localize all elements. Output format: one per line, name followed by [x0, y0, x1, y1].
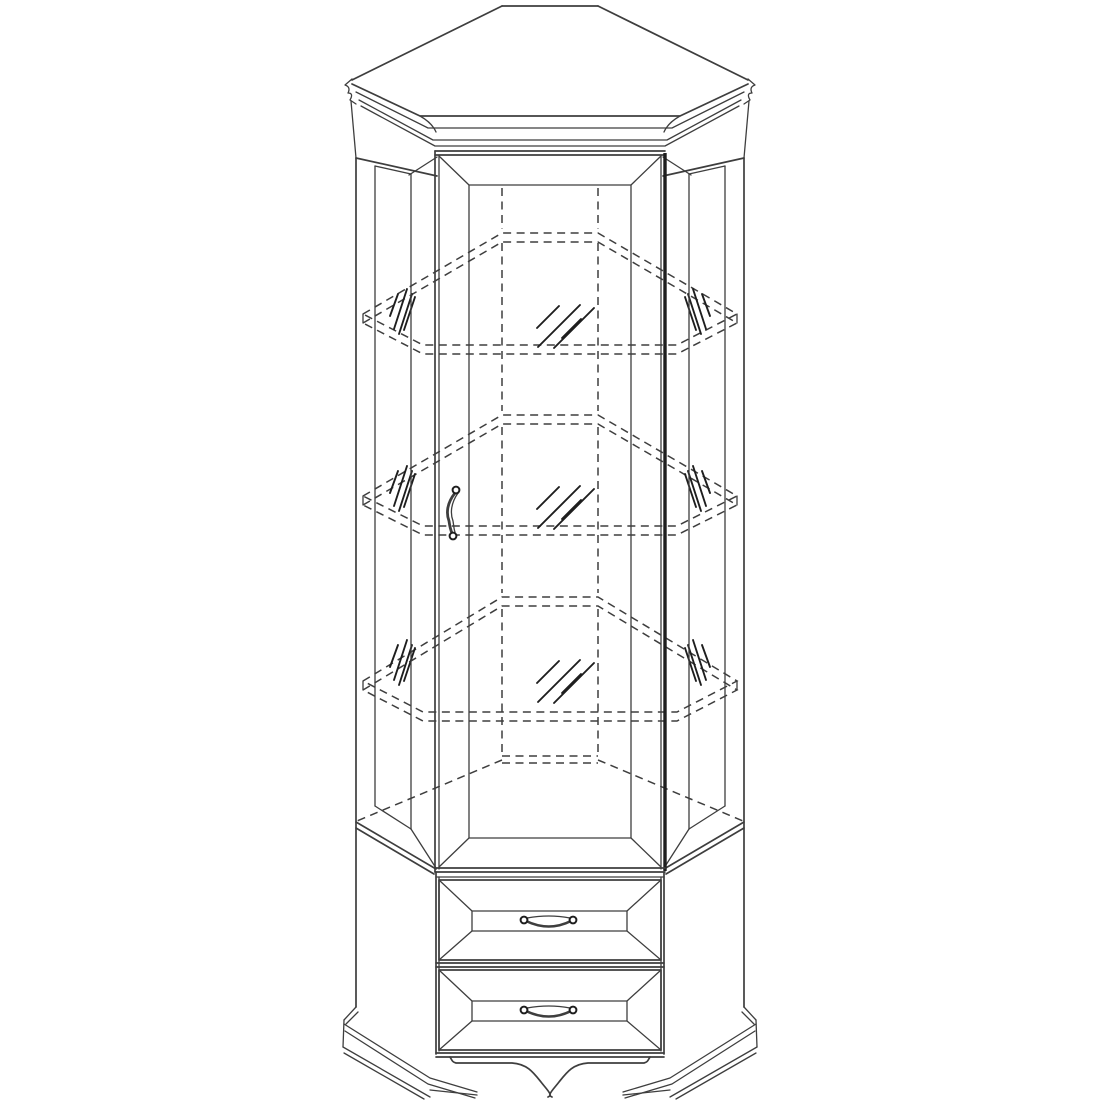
door-bottom-bevels: [439, 838, 661, 867]
drawer-panel: [472, 911, 627, 931]
right-top-edge: [663, 158, 744, 176]
foot-bottom-right: [623, 1090, 670, 1095]
drawer-lower: [439, 970, 661, 1050]
right-angled-side-panel: [663, 157, 744, 1007]
crown-ogee-ends: [420, 116, 680, 132]
crown-tip-right: [744, 79, 755, 104]
left-display-bottom-edge: [356, 822, 436, 874]
crown-tip-left: [345, 79, 356, 104]
drawer-panel: [472, 1001, 627, 1021]
drawer-divider-rail: [436, 963, 664, 967]
crown-tip-returns: [351, 101, 749, 158]
door-top-bevels: [439, 156, 661, 185]
door-top-edge: [435, 151, 665, 155]
glass-shelf-bottom: [363, 597, 737, 721]
cabinet-interior-hidden-lines: [357, 188, 743, 821]
door-pull-handle: [447, 487, 459, 540]
right-panel-ends: [689, 166, 725, 829]
shelf-edge-caps: [363, 496, 737, 505]
handle-top-knob: [453, 487, 460, 494]
left-panel-bevel-edges: [375, 166, 411, 829]
furniture-technical-drawing: [0, 0, 1100, 1100]
glass-hatch-center-middle: [537, 486, 594, 529]
right-panel-bevel-edges: [689, 166, 725, 829]
handle-bottom-knob: [450, 533, 457, 540]
shelf-edge-caps: [363, 681, 737, 690]
left-angled-side-panel: [356, 157, 437, 1007]
drawer-pull-handle: [521, 916, 577, 927]
left-panel-corner-bevels: [409, 157, 437, 868]
glass-hatch-marks: [390, 289, 710, 703]
interior-floor: [357, 756, 743, 821]
apron-arch-right: [550, 1057, 650, 1097]
drawer-pull-handle: [521, 1006, 577, 1017]
apron-arch-left: [450, 1057, 550, 1097]
door-glass-panel-frame: [469, 185, 631, 838]
interior-back-corner-edges: [502, 188, 598, 752]
crown-molding-hood: [345, 6, 755, 158]
drawer-upper: [439, 880, 661, 960]
glass-hatch-center-top: [537, 305, 594, 348]
drawer-section: [436, 872, 664, 1054]
foot-bottom-left: [430, 1090, 477, 1095]
drawer-stack-inner-edges: [439, 877, 661, 1051]
right-panel-corner-bevels: [663, 157, 691, 868]
left-panel-ends: [375, 166, 411, 829]
base-top-rail: [436, 1053, 664, 1057]
glass-display-door: [435, 151, 665, 872]
door-bottom-edge: [435, 868, 665, 872]
hood-front-edge: [352, 84, 748, 116]
left-top-edge: [356, 158, 437, 176]
corner-cabinet-line-drawing: [0, 0, 1100, 1100]
crown-band-1: [356, 92, 744, 128]
crown-band-2: [359, 100, 741, 140]
glass-hatch-center-bottom: [537, 660, 594, 703]
right-display-bottom-edge: [664, 822, 744, 874]
hood-slope-edges: [352, 6, 748, 80]
